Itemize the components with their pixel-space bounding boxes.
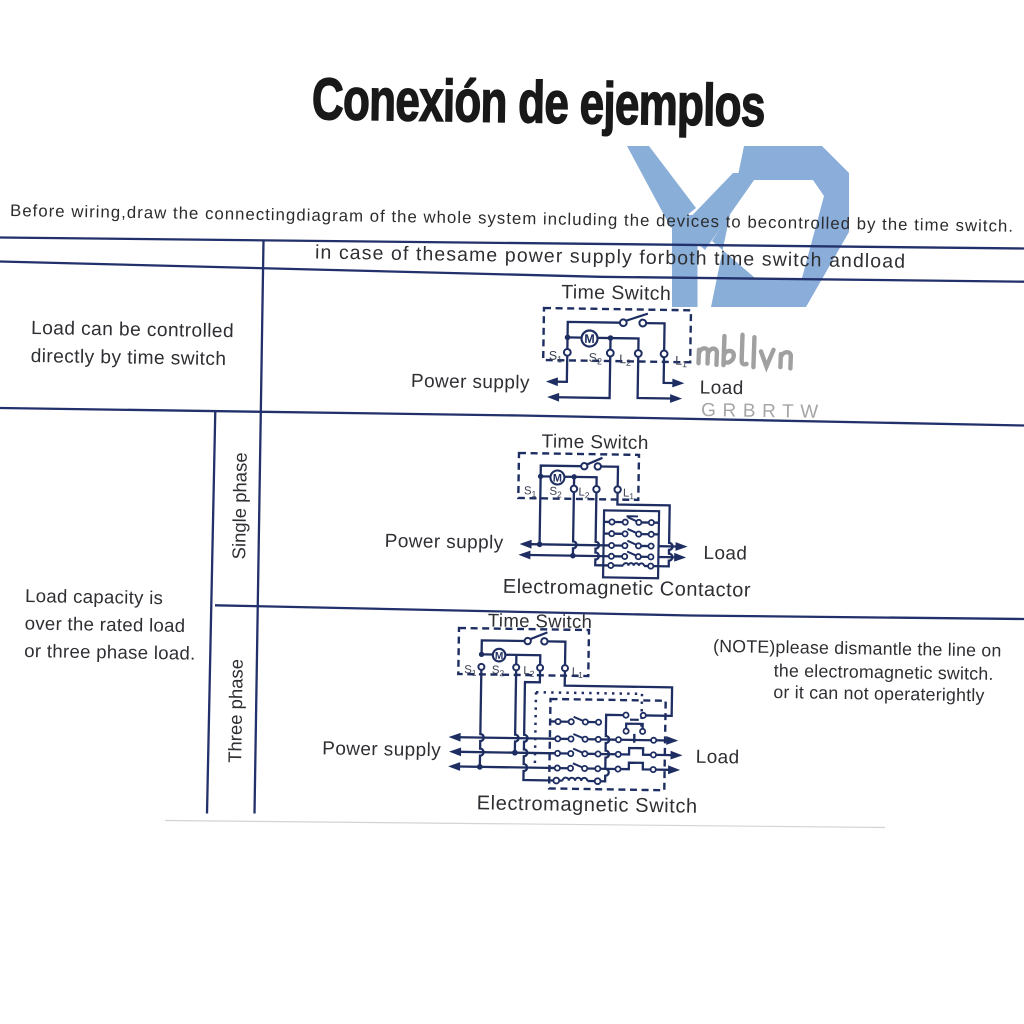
svg-text:Time Switch: Time Switch — [541, 431, 648, 454]
svg-text:Power supply: Power supply — [322, 738, 441, 761]
svg-text:or it can not operaterightly: or it can not operaterightly — [773, 682, 984, 705]
svg-text:Power supply: Power supply — [411, 371, 530, 394]
svg-text:Power supply: Power supply — [385, 531, 504, 554]
svg-text:Electromagnetic Switch: Electromagnetic Switch — [477, 792, 698, 817]
svg-text:Load capacity is: Load capacity is — [25, 585, 163, 608]
svg-text:over the rated load: over the rated load — [25, 612, 186, 636]
svg-text:the electromagnetic switch.: the electromagnetic switch. — [774, 660, 994, 683]
svg-text:directly by time switch: directly by time switch — [30, 346, 226, 370]
svg-text:Load: Load — [700, 377, 744, 399]
svg-text:Conexión de ejemplos: Conexión de ejemplos — [311, 67, 765, 140]
svg-text:or three phase load.: or three phase load. — [24, 640, 196, 664]
svg-text:Three phase: Three phase — [224, 659, 247, 763]
svg-text:Load: Load — [703, 543, 747, 565]
svg-text:M: M — [584, 332, 595, 346]
svg-text:M: M — [553, 473, 562, 485]
svg-text:Single phase: Single phase — [228, 452, 251, 559]
svg-text:Electromagnetic Contactor: Electromagnetic Contactor — [503, 576, 751, 602]
svg-text:M: M — [495, 651, 504, 662]
svg-text:Load: Load — [696, 747, 740, 769]
svg-text:Load can be controlled: Load can be controlled — [31, 318, 234, 342]
svg-text:Time Switch: Time Switch — [561, 281, 671, 305]
